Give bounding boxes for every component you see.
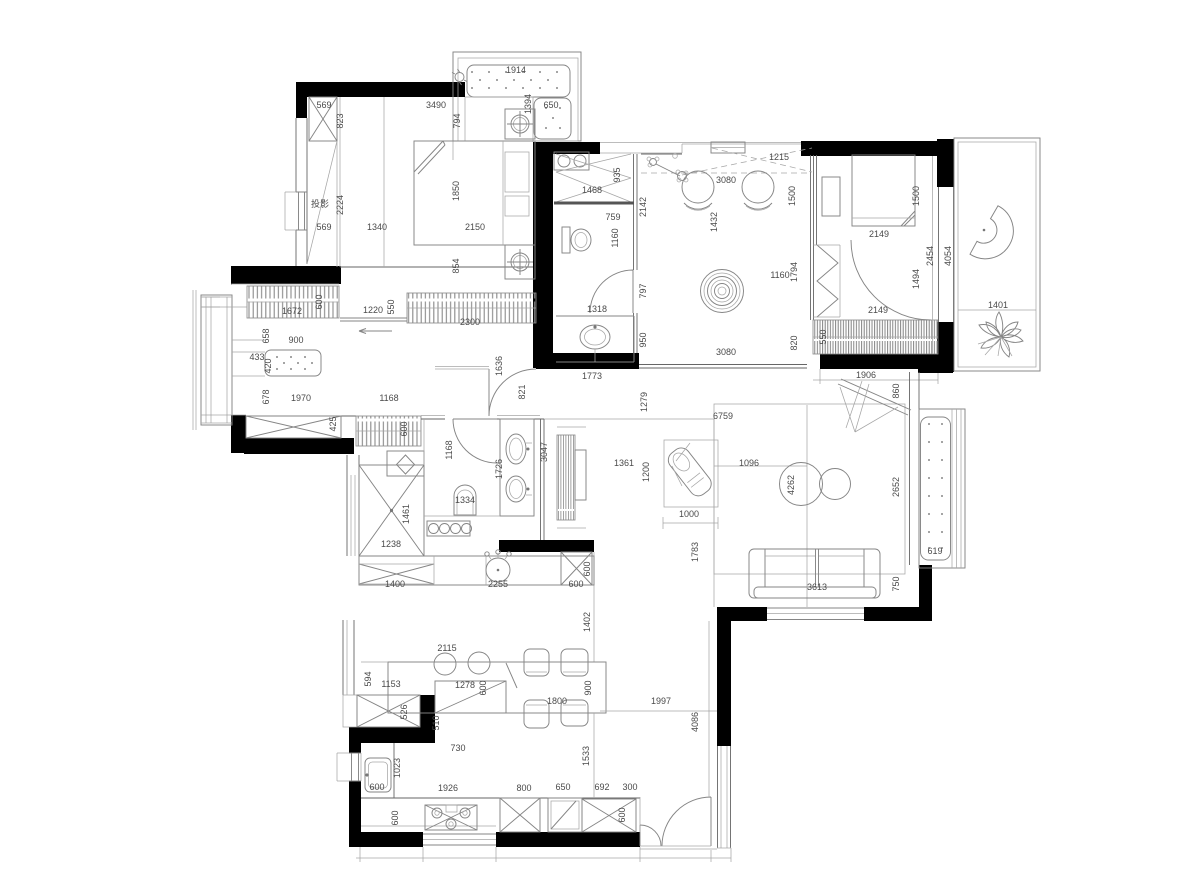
svg-text:650: 650: [543, 100, 558, 110]
svg-text:1432: 1432: [709, 212, 719, 232]
svg-text:投影: 投影: [311, 198, 329, 209]
svg-text:1672: 1672: [282, 306, 302, 316]
svg-text:860: 860: [891, 383, 901, 398]
svg-text:600: 600: [399, 421, 409, 436]
svg-text:600: 600: [617, 807, 627, 822]
svg-text:1168: 1168: [379, 393, 398, 403]
svg-text:2255: 2255: [488, 579, 508, 589]
svg-text:1636: 1636: [494, 356, 504, 376]
svg-text:1468: 1468: [582, 185, 602, 195]
svg-text:1914: 1914: [506, 65, 526, 75]
svg-text:4086: 4086: [690, 712, 700, 732]
svg-text:900: 900: [288, 335, 303, 345]
svg-text:1000: 1000: [679, 509, 699, 519]
svg-text:1200: 1200: [641, 462, 651, 482]
svg-text:6759: 6759: [713, 411, 733, 421]
svg-text:1394: 1394: [523, 94, 533, 114]
svg-text:4262: 4262: [786, 475, 796, 495]
svg-text:3080: 3080: [716, 347, 736, 357]
svg-text:1220: 1220: [363, 305, 383, 315]
svg-text:2652: 2652: [891, 477, 901, 497]
svg-text:1726: 1726: [494, 459, 504, 479]
svg-text:1160: 1160: [770, 270, 789, 280]
svg-text:797: 797: [638, 283, 648, 298]
svg-text:1926: 1926: [438, 783, 458, 793]
svg-text:1401: 1401: [988, 300, 1008, 310]
svg-text:550: 550: [818, 329, 828, 344]
svg-text:1533: 1533: [581, 746, 591, 766]
svg-text:2454: 2454: [925, 246, 935, 266]
svg-text:425: 425: [328, 416, 338, 431]
svg-text:1906: 1906: [856, 370, 876, 380]
svg-text:821: 821: [517, 384, 527, 399]
svg-text:730: 730: [450, 743, 465, 753]
svg-text:1783: 1783: [690, 542, 700, 562]
svg-text:1500: 1500: [787, 186, 797, 206]
svg-text:1279: 1279: [639, 392, 649, 412]
svg-text:794: 794: [452, 113, 462, 128]
svg-text:600: 600: [369, 782, 384, 792]
svg-text:1215: 1215: [769, 152, 789, 162]
svg-text:1494: 1494: [911, 269, 921, 289]
svg-text:750: 750: [891, 576, 901, 591]
svg-text:1970: 1970: [291, 393, 311, 403]
svg-text:2149: 2149: [869, 229, 889, 239]
svg-text:2142: 2142: [638, 197, 648, 217]
svg-text:854: 854: [451, 258, 461, 273]
svg-text:600: 600: [314, 294, 324, 309]
svg-text:1500: 1500: [911, 186, 921, 206]
svg-text:1278: 1278: [455, 680, 475, 690]
svg-text:1402: 1402: [582, 612, 592, 632]
svg-text:1461: 1461: [401, 504, 411, 524]
svg-text:1773: 1773: [582, 371, 602, 381]
svg-text:1400: 1400: [385, 579, 405, 589]
svg-text:1794: 1794: [789, 262, 799, 282]
svg-text:1168: 1168: [444, 440, 454, 459]
svg-text:1318: 1318: [587, 304, 607, 314]
svg-text:1340: 1340: [367, 222, 387, 232]
svg-text:759: 759: [605, 212, 620, 222]
svg-text:1096: 1096: [739, 458, 759, 468]
svg-text:1334: 1334: [455, 495, 475, 505]
svg-text:935: 935: [612, 167, 622, 182]
svg-text:4054: 4054: [943, 246, 953, 266]
svg-text:678: 678: [261, 389, 271, 404]
svg-text:594: 594: [363, 671, 373, 686]
svg-text:650: 650: [555, 782, 570, 792]
svg-text:600: 600: [582, 561, 592, 576]
svg-text:550: 550: [386, 299, 396, 314]
svg-text:1160: 1160: [610, 228, 620, 247]
svg-text:692: 692: [594, 782, 609, 792]
svg-text:2149: 2149: [868, 305, 888, 315]
svg-text:658: 658: [261, 328, 271, 343]
svg-text:619: 619: [927, 546, 942, 556]
svg-text:1997: 1997: [651, 696, 671, 706]
svg-text:823: 823: [335, 113, 345, 128]
svg-text:1850: 1850: [451, 181, 461, 201]
svg-text:420: 420: [263, 358, 273, 373]
svg-text:820: 820: [789, 335, 799, 350]
svg-text:600: 600: [478, 680, 488, 695]
svg-text:1238: 1238: [381, 539, 401, 549]
svg-text:1361: 1361: [614, 458, 634, 468]
svg-text:1153: 1153: [381, 679, 400, 689]
svg-text:600: 600: [390, 810, 400, 825]
svg-text:2115: 2115: [437, 643, 456, 653]
svg-text:2224: 2224: [335, 195, 345, 215]
svg-text:3613: 3613: [807, 582, 827, 592]
svg-text:950: 950: [638, 332, 648, 347]
svg-text:569: 569: [316, 222, 331, 232]
svg-text:569: 569: [316, 100, 331, 110]
svg-text:1023: 1023: [392, 758, 402, 778]
svg-text:3080: 3080: [716, 175, 736, 185]
svg-text:2300: 2300: [460, 317, 480, 327]
svg-text:526: 526: [399, 704, 409, 719]
svg-text:1800: 1800: [547, 696, 567, 706]
svg-text:3490: 3490: [426, 100, 446, 110]
svg-text:900: 900: [583, 680, 593, 695]
svg-text:300: 300: [622, 782, 637, 792]
svg-text:3047: 3047: [539, 442, 549, 462]
svg-text:600: 600: [568, 579, 583, 589]
svg-text:2150: 2150: [465, 222, 485, 232]
svg-text:800: 800: [516, 783, 531, 793]
svg-text:510: 510: [431, 715, 441, 730]
